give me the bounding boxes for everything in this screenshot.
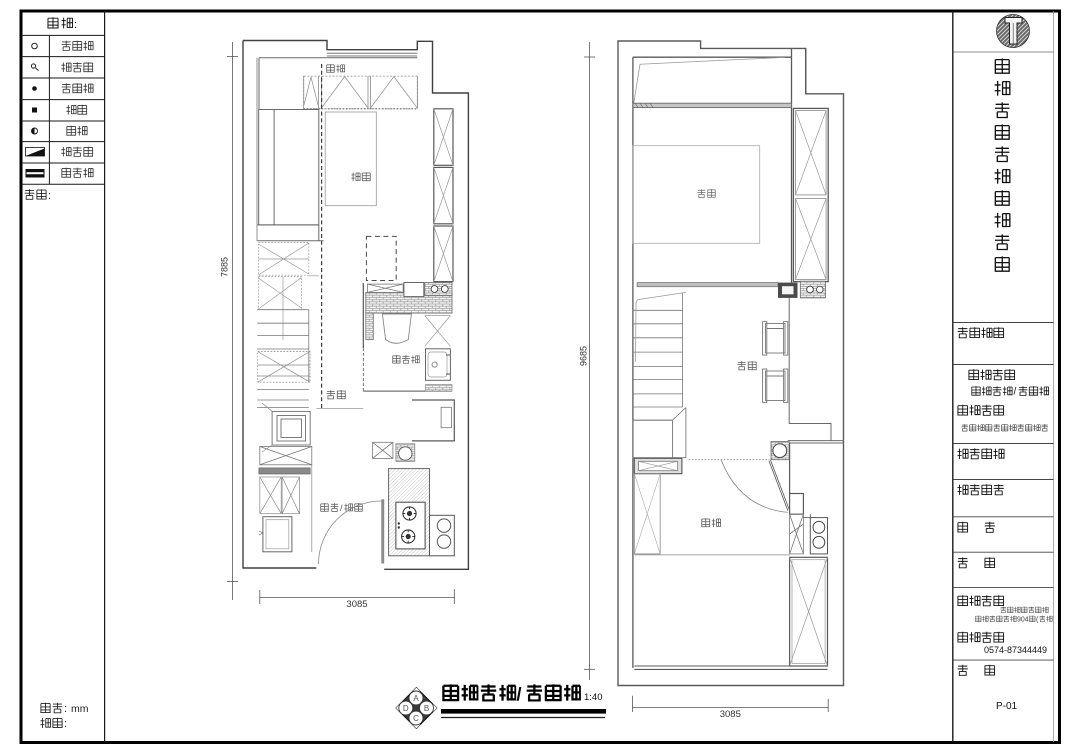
svg-text:7885: 7885 [220, 257, 230, 277]
svg-text:9685: 9685 [579, 346, 589, 366]
svg-text:P-01: P-01 [996, 701, 1018, 712]
svg-text:1:40: 1:40 [584, 692, 603, 703]
svg-text::: : [48, 190, 51, 202]
svg-text:/: / [1014, 387, 1017, 398]
svg-text:/: / [517, 685, 522, 705]
svg-text:0574-87344449: 0574-87344449 [984, 645, 1047, 655]
svg-text:mm: mm [71, 703, 89, 715]
svg-text:D: D [403, 704, 409, 713]
svg-text:3085: 3085 [720, 709, 741, 720]
svg-text:C: C [413, 714, 419, 723]
svg-text::: : [74, 19, 77, 31]
svg-text:904: 904 [1017, 617, 1029, 624]
svg-text::: : [64, 703, 67, 715]
svg-text:3085: 3085 [346, 599, 367, 610]
svg-text:A: A [413, 694, 419, 703]
svg-text:B: B [424, 704, 429, 713]
svg-text::: : [64, 718, 67, 730]
